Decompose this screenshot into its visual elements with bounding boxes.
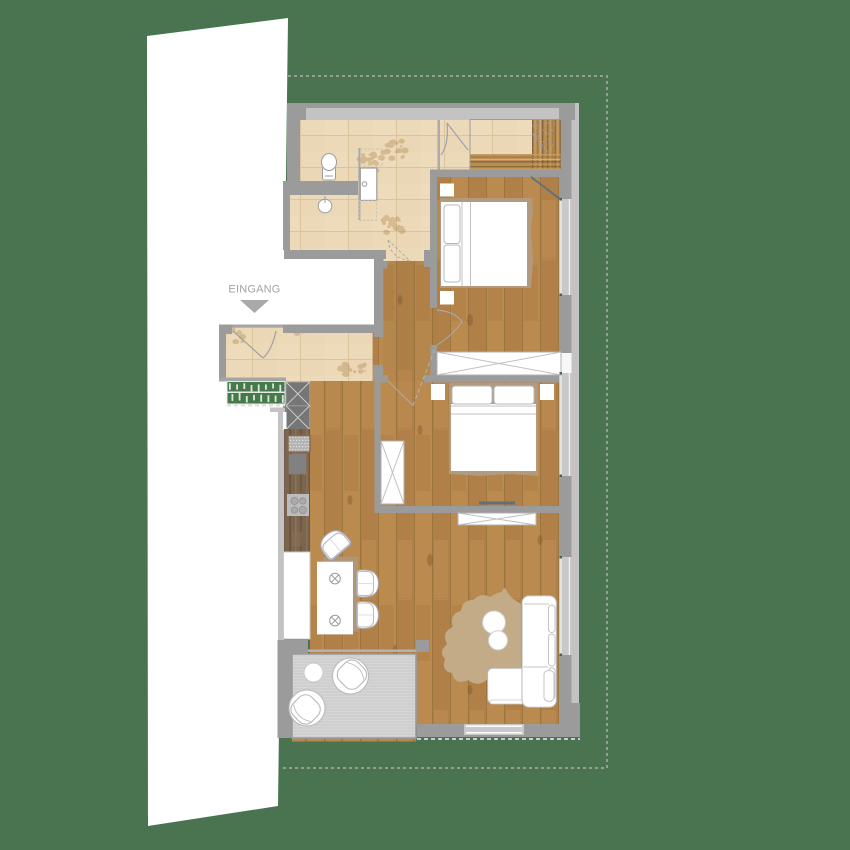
svg-text:EINGANG: EINGANG	[228, 284, 280, 296]
